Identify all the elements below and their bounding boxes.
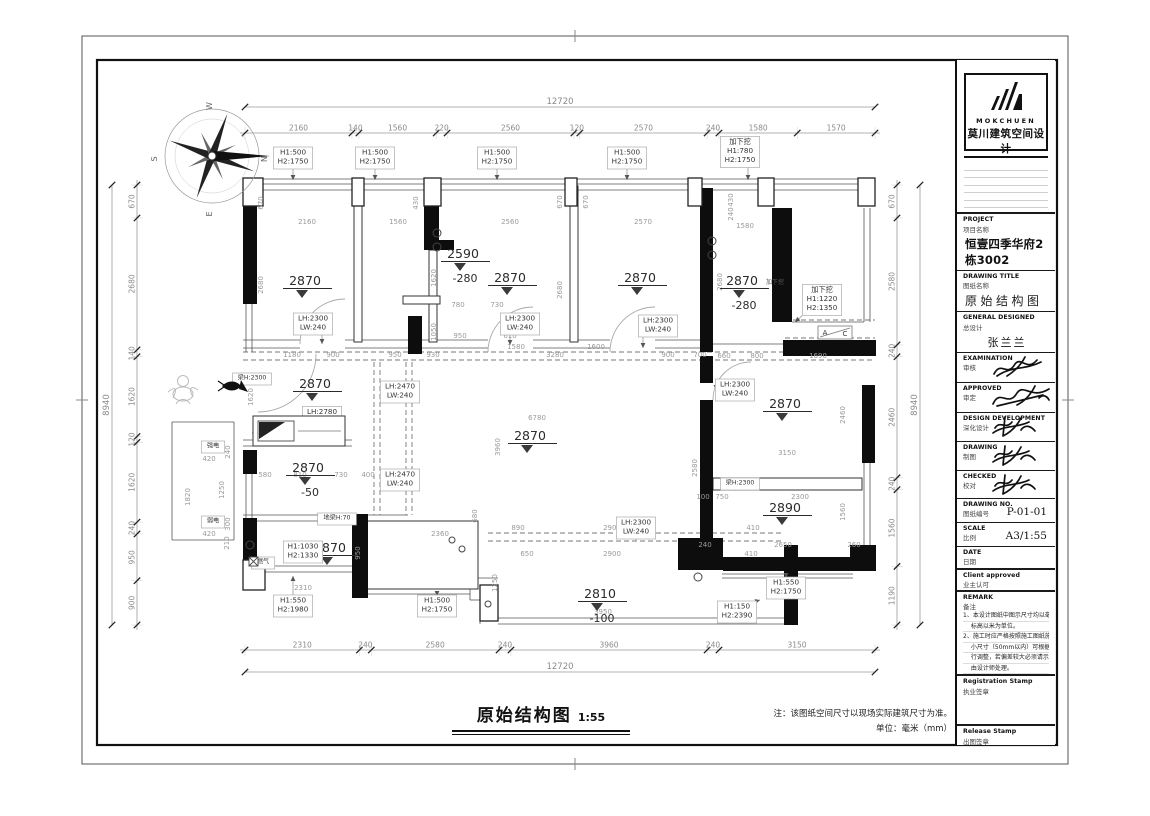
tb-row-approved: APPROVED审定 <box>957 382 1055 412</box>
svg-text:1620: 1620 <box>247 388 255 406</box>
svg-text:6780: 6780 <box>528 414 546 422</box>
svg-text:1050: 1050 <box>430 323 438 341</box>
svg-text:2310: 2310 <box>293 641 312 650</box>
svg-text:1820: 1820 <box>184 488 192 506</box>
tb-row-release-stamp: Release Stamp出图签章 <box>957 724 1055 782</box>
tb-label-en: Registration Stamp <box>963 678 1049 685</box>
svg-text:240: 240 <box>888 476 897 491</box>
svg-text:H2:1750: H2:1750 <box>422 605 453 614</box>
svg-text:2900: 2900 <box>603 550 621 558</box>
svg-text:H1:550: H1:550 <box>280 596 307 605</box>
svg-text:1620: 1620 <box>128 473 137 492</box>
svg-text:1180: 1180 <box>283 351 301 359</box>
svg-text:210: 210 <box>223 536 231 549</box>
tb-row-drawing-title: DRAWING TITLE图纸名称原始结构图 <box>957 270 1055 310</box>
svg-text:3960: 3960 <box>599 641 618 650</box>
brand-name: MOKCHUEN <box>966 117 1046 125</box>
svg-text:2870: 2870 <box>289 273 321 288</box>
svg-text:H2:1750: H2:1750 <box>482 157 513 166</box>
logo-glyph-icon <box>989 82 1023 110</box>
remark-note-line: 小尺寸（50mm以内）可根据现场实况进 <box>963 643 1049 654</box>
svg-text:LH:2470: LH:2470 <box>385 382 416 391</box>
svg-text:LW:240: LW:240 <box>300 323 327 332</box>
svg-text:240: 240 <box>128 521 137 536</box>
svg-text:240: 240 <box>358 641 373 650</box>
drawing-sheet: 2160140156022025601202570240158015702310… <box>0 0 1150 816</box>
svg-text:410: 410 <box>744 550 757 558</box>
svg-text:1560: 1560 <box>388 124 407 133</box>
svg-text:2360: 2360 <box>431 530 449 538</box>
svg-text:3960: 3960 <box>494 438 502 456</box>
svg-text:1250: 1250 <box>218 481 226 499</box>
svg-text:H1:500: H1:500 <box>614 148 641 157</box>
svg-text:410: 410 <box>746 524 759 532</box>
svg-text:400: 400 <box>361 471 374 479</box>
svg-text:LH:2470: LH:2470 <box>385 470 416 479</box>
tb-value: 原始结构图 <box>965 292 1049 309</box>
svg-text:LW:240: LW:240 <box>645 325 672 334</box>
svg-text:2570: 2570 <box>634 218 652 226</box>
svg-text:弱电: 弱电 <box>207 517 219 525</box>
svg-text:LH:2300: LH:2300 <box>621 518 652 527</box>
svg-text:2560: 2560 <box>501 218 519 226</box>
svg-text:1190: 1190 <box>888 586 897 605</box>
svg-text:900: 900 <box>128 595 137 610</box>
svg-text:LH:2300: LH:2300 <box>643 316 674 325</box>
svg-text:670: 670 <box>128 194 137 209</box>
tb-row-examination: EXAMINATION审核 <box>957 352 1055 382</box>
svg-text:2310: 2310 <box>294 584 312 592</box>
tb-label-cn: 项目名称 <box>963 224 1049 234</box>
svg-text:900: 900 <box>661 351 674 359</box>
svg-text:950: 950 <box>388 351 401 359</box>
svg-text:H2:1750: H2:1750 <box>725 155 756 164</box>
svg-text:W: W <box>205 102 214 110</box>
svg-text:420: 420 <box>202 530 215 538</box>
svg-text:730: 730 <box>334 471 347 479</box>
svg-text:加下挖: 加下挖 <box>766 278 784 286</box>
svg-text:-100: -100 <box>590 612 615 625</box>
svg-text:240: 240 <box>706 124 721 133</box>
svg-text:LW:240: LW:240 <box>387 391 414 400</box>
footer-note: 注：该图纸空间尺寸以现场实际建筑尺寸为准。 单位：毫米（mm） <box>690 707 952 738</box>
tb-label-en: PROJECT <box>963 216 1049 223</box>
tb-label-en: Client approved <box>963 572 1049 579</box>
sheet-borders <box>76 30 1074 770</box>
svg-text:2650: 2650 <box>774 541 792 549</box>
svg-text:H1:500: H1:500 <box>424 596 451 605</box>
tb-row-project: PROJECT项目名称恒壹四季华府2栋3002 <box>957 212 1055 268</box>
svg-text:12720: 12720 <box>546 662 573 672</box>
svg-text:2460: 2460 <box>888 408 897 427</box>
remark-note-line: 标高以米为单位。 <box>963 622 1049 633</box>
svg-text:E: E <box>205 211 214 216</box>
svg-text:240: 240 <box>727 207 735 220</box>
svg-text:H1:1030: H1:1030 <box>288 542 319 551</box>
svg-text:120: 120 <box>128 432 137 447</box>
remark-note-line: 1、本设计图纸中图示尺寸均以毫米为单位， <box>963 611 1049 622</box>
svg-text:890: 890 <box>511 524 524 532</box>
svg-text:1580: 1580 <box>736 222 754 230</box>
svg-text:2560: 2560 <box>501 124 520 133</box>
svg-text:2590: 2590 <box>447 246 479 261</box>
tb-row-checked: CHECKED校对 <box>957 470 1055 498</box>
tb-value: A3/1:55 <box>1006 530 1047 542</box>
svg-text:1560: 1560 <box>839 503 847 521</box>
title-block: MOKCHUEN 莫川建筑空间设计 PROJECT项目名称恒壹四季华府2栋300… <box>955 60 1055 745</box>
svg-text:220: 220 <box>434 124 449 133</box>
svg-text:240: 240 <box>888 343 897 358</box>
remark-note-line: 由设计师处理。 <box>963 664 1049 675</box>
footer-note-line1: 注：该图纸空间尺寸以现场实际建筑尺寸为准。 <box>690 707 952 722</box>
svg-text:2870: 2870 <box>624 270 656 285</box>
notes-ruled-lines <box>964 156 1048 208</box>
drawing-caption-title: 原始结构图 <box>477 706 572 726</box>
remark-note-line: 行调整，若偏差较大必须请示设计师， <box>963 653 1049 664</box>
tb-value: 张兰兰 <box>965 334 1049 350</box>
svg-text:C: C <box>843 330 848 338</box>
svg-text:LH:2300: LH:2300 <box>720 380 751 389</box>
tb-row-design-development: DESIGN DEVELOPMENT深化设计 <box>957 412 1055 441</box>
svg-text:LH:2300: LH:2300 <box>298 314 329 323</box>
svg-text:LH:2300: LH:2300 <box>505 314 536 323</box>
section-marker-ac: AC <box>818 326 852 339</box>
svg-text:240: 240 <box>706 641 721 650</box>
svg-text:H2:1750: H2:1750 <box>612 157 643 166</box>
svg-text:580: 580 <box>258 471 271 479</box>
svg-text:2680: 2680 <box>556 281 564 299</box>
svg-text:H1:500: H1:500 <box>484 148 511 157</box>
gas-meter-icon <box>249 557 258 566</box>
svg-text:S: S <box>150 156 159 161</box>
svg-text:240: 240 <box>698 541 711 549</box>
tb-row-general-designed: GENERAL DESIGNED总设计张兰兰 <box>957 311 1055 350</box>
svg-text:260: 260 <box>847 541 860 549</box>
svg-text:140: 140 <box>348 124 363 133</box>
svg-text:240: 240 <box>224 445 232 458</box>
tb-row-date: DATE日期 <box>957 546 1055 568</box>
svg-text:-280: -280 <box>732 299 757 312</box>
tb-label-cn: 总设计 <box>963 322 1049 332</box>
svg-text:430: 430 <box>412 196 420 209</box>
svg-text:梁H:2300: 梁H:2300 <box>238 374 267 382</box>
svg-text:420: 420 <box>202 455 215 463</box>
svg-text:H1:150: H1:150 <box>724 602 751 611</box>
svg-text:2160: 2160 <box>289 124 308 133</box>
svg-text:1570: 1570 <box>827 124 846 133</box>
svg-text:3150: 3150 <box>787 641 806 650</box>
svg-text:950: 950 <box>453 332 466 340</box>
svg-text:LW:240: LW:240 <box>722 389 749 398</box>
svg-text:H1:780: H1:780 <box>727 146 754 155</box>
svg-text:1620: 1620 <box>128 387 137 406</box>
svg-text:2870: 2870 <box>494 270 526 285</box>
svg-text:H1:500: H1:500 <box>362 148 389 157</box>
svg-text:950: 950 <box>128 550 137 565</box>
svg-text:930: 930 <box>426 351 439 359</box>
svg-text:H1:500: H1:500 <box>280 148 307 157</box>
signature-scribble <box>991 472 1053 498</box>
svg-text:H2:1330: H2:1330 <box>288 551 319 560</box>
svg-text:1620: 1620 <box>430 269 438 287</box>
svg-text:H2:1350: H2:1350 <box>807 303 838 312</box>
tb-label-cn: 执业签章 <box>963 686 1049 696</box>
tb-label-en: REMARK <box>963 594 1049 601</box>
svg-text:670: 670 <box>582 195 590 208</box>
svg-text:H2:1980: H2:1980 <box>278 605 309 614</box>
svg-text:3280: 3280 <box>546 351 564 359</box>
svg-text:2870: 2870 <box>292 460 324 475</box>
entry-cabinet <box>253 416 345 446</box>
tb-label-cn: 出图签章 <box>963 736 1049 746</box>
svg-text:2870: 2870 <box>299 376 331 391</box>
svg-text:加下挖: 加下挖 <box>811 285 833 294</box>
signature-scribble <box>991 414 1053 440</box>
svg-text:650: 650 <box>520 550 533 558</box>
svg-text:2580: 2580 <box>426 641 445 650</box>
svg-text:N: N <box>260 156 269 162</box>
brand-name-cn: 莫川建筑空间设计 <box>966 126 1046 156</box>
svg-text:12720: 12720 <box>546 97 573 107</box>
svg-text:加下挖: 加下挖 <box>729 137 751 146</box>
svg-text:1580: 1580 <box>749 124 768 133</box>
svg-text:950: 950 <box>354 546 362 559</box>
svg-text:2810: 2810 <box>584 586 616 601</box>
svg-text:2870: 2870 <box>769 396 801 411</box>
svg-text:2460: 2460 <box>839 406 847 424</box>
company-logo: MOKCHUEN 莫川建筑空间设计 <box>964 73 1048 151</box>
svg-text:700: 700 <box>693 351 706 359</box>
svg-text:2680: 2680 <box>128 274 137 293</box>
svg-text:LW:240: LW:240 <box>623 527 650 536</box>
svg-text:780: 780 <box>451 301 464 309</box>
svg-text:430: 430 <box>727 193 735 206</box>
svg-text:900: 900 <box>326 351 339 359</box>
svg-text:3150: 3150 <box>778 449 796 457</box>
svg-text:670: 670 <box>257 196 265 209</box>
svg-text:1560: 1560 <box>888 518 897 537</box>
svg-text:750: 750 <box>715 493 728 501</box>
tb-label-cn: 业主认可 <box>963 579 1049 589</box>
svg-text:H1:550: H1:550 <box>773 578 800 587</box>
svg-text:强电: 强电 <box>207 442 219 450</box>
svg-text:2870: 2870 <box>514 428 546 443</box>
signature-scribble <box>991 384 1053 410</box>
svg-text:H2:1750: H2:1750 <box>360 157 391 166</box>
signature-scribble <box>991 443 1053 469</box>
svg-text:2570: 2570 <box>634 124 653 133</box>
tb-row-scale: SCALE比例A3/1:55 <box>957 522 1055 546</box>
tb-row-client-approved: Client approved业主认可 <box>957 568 1055 590</box>
svg-text:-280: -280 <box>453 272 478 285</box>
svg-text:8940: 8940 <box>102 394 112 416</box>
tb-value: P-01-01 <box>1007 506 1047 518</box>
svg-text:H2:2390: H2:2390 <box>722 611 753 620</box>
svg-text:H2:1750: H2:1750 <box>771 587 802 596</box>
svg-text:100: 100 <box>696 493 709 501</box>
svg-text:LH:2780: LH:2780 <box>307 407 338 416</box>
svg-text:140: 140 <box>128 346 137 361</box>
signature-scribble <box>991 354 1053 380</box>
svg-text:燃气: 燃气 <box>257 558 269 566</box>
drawing-caption-scale: 1:55 <box>578 711 605 724</box>
svg-text:梁H:2300: 梁H:2300 <box>726 479 755 487</box>
tb-value: 恒壹四季华府2栋3002 <box>965 236 1049 268</box>
svg-text:730: 730 <box>490 301 503 309</box>
title-block-rows: PROJECT项目名称恒壹四季华府2栋3002DRAWING TITLE图纸名称… <box>957 212 1055 782</box>
tb-label-cn: 备注 <box>963 601 1049 611</box>
tb-label-en: DATE <box>963 549 1049 556</box>
svg-text:8940: 8940 <box>910 394 920 416</box>
svg-text:2870: 2870 <box>726 273 758 288</box>
svg-text:A: A <box>823 329 828 337</box>
drawing-caption: 原始结构图1:55 <box>452 701 630 732</box>
remark-note-line: 2、施工时应严格按照施工图纸施工，局部 <box>963 632 1049 643</box>
svg-text:300: 300 <box>224 517 232 530</box>
tb-label-cn: 图纸名称 <box>963 280 1049 290</box>
tb-row-drawing: DRAWING制图 <box>957 441 1055 470</box>
tb-label-en: DRAWING TITLE <box>963 273 1049 280</box>
svg-text:120: 120 <box>570 124 585 133</box>
svg-text:H1:1220: H1:1220 <box>807 294 838 303</box>
svg-text:2160: 2160 <box>298 218 316 226</box>
svg-text:2580: 2580 <box>691 459 699 477</box>
tb-row-registration-stamp: Registration Stamp执业签章 <box>957 674 1055 724</box>
svg-text:1560: 1560 <box>389 218 407 226</box>
svg-text:2680: 2680 <box>257 276 265 294</box>
svg-text:LW:240: LW:240 <box>507 323 534 332</box>
svg-text:2890: 2890 <box>769 500 801 515</box>
tb-row-drawing-no-: DRAWING NO.图纸编号P-01-01 <box>957 498 1055 522</box>
svg-text:LW:240: LW:240 <box>387 479 414 488</box>
svg-text:1690: 1690 <box>809 352 827 360</box>
svg-text:670: 670 <box>556 195 564 208</box>
tb-label-en: GENERAL DESIGNED <box>963 314 1049 321</box>
svg-text:670: 670 <box>888 194 897 209</box>
tb-row-remark: REMARK备注1、本设计图纸中图示尺寸均以毫米为单位， 标高以米为单位。2、施… <box>957 590 1055 675</box>
entry-figures <box>168 376 198 405</box>
svg-text:1600: 1600 <box>587 343 605 351</box>
svg-text:2580: 2580 <box>888 272 897 291</box>
footer-note-line2: 单位：毫米（mm） <box>690 722 952 737</box>
svg-text:H2:1750: H2:1750 <box>278 157 309 166</box>
svg-text:1250: 1250 <box>491 574 499 592</box>
tb-label-cn: 日期 <box>963 556 1049 566</box>
svg-text:-50: -50 <box>301 486 319 499</box>
svg-text:240: 240 <box>498 641 513 650</box>
svg-text:680: 680 <box>471 509 479 522</box>
svg-text:800: 800 <box>750 352 763 360</box>
svg-text:地梁H:70: 地梁H:70 <box>324 514 351 522</box>
tb-label-en: Release Stamp <box>963 728 1049 735</box>
svg-text:660: 660 <box>717 352 730 360</box>
